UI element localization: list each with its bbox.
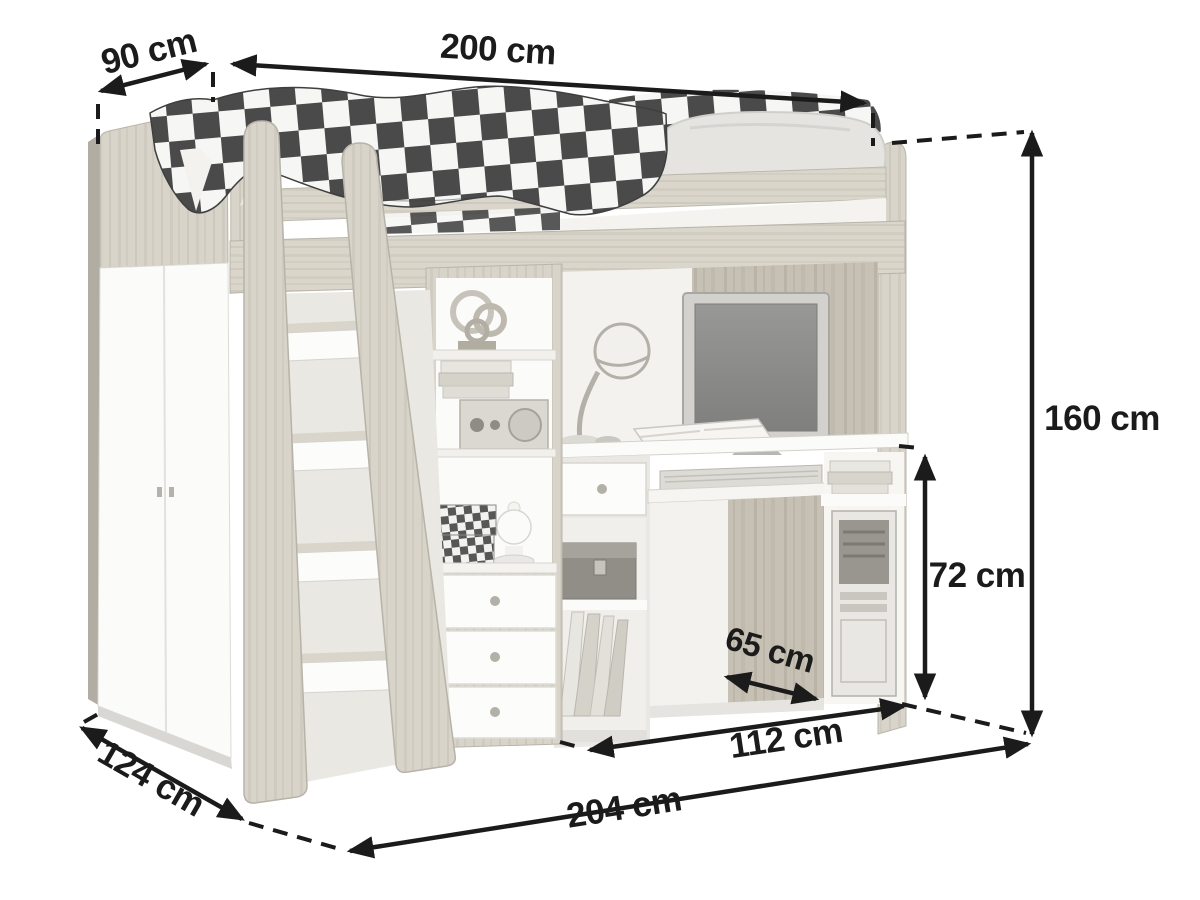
computer-tower [832, 511, 896, 696]
storage-chest [562, 543, 636, 599]
dimension-label-desk-height: 72 cm [929, 556, 1026, 596]
dimension-diagram: 90 cm 200 cm 160 cm 72 cm 65 cm 112 cm 1… [0, 0, 1200, 900]
wardrobe-handle [157, 487, 162, 497]
desk-drawer-unit [554, 455, 650, 748]
dimension-label-height: 160 cm [1044, 399, 1160, 439]
radio [460, 400, 548, 449]
furniture-illustration [0, 0, 1200, 900]
desk-right-unit [821, 452, 906, 704]
wardrobe-handle [169, 487, 174, 497]
dimension-label-top-width: 200 cm [439, 27, 557, 74]
books [828, 461, 892, 494]
drawers [434, 575, 556, 738]
book-stack [439, 361, 513, 398]
binders [560, 612, 628, 716]
desk-leg-panel [650, 500, 728, 710]
